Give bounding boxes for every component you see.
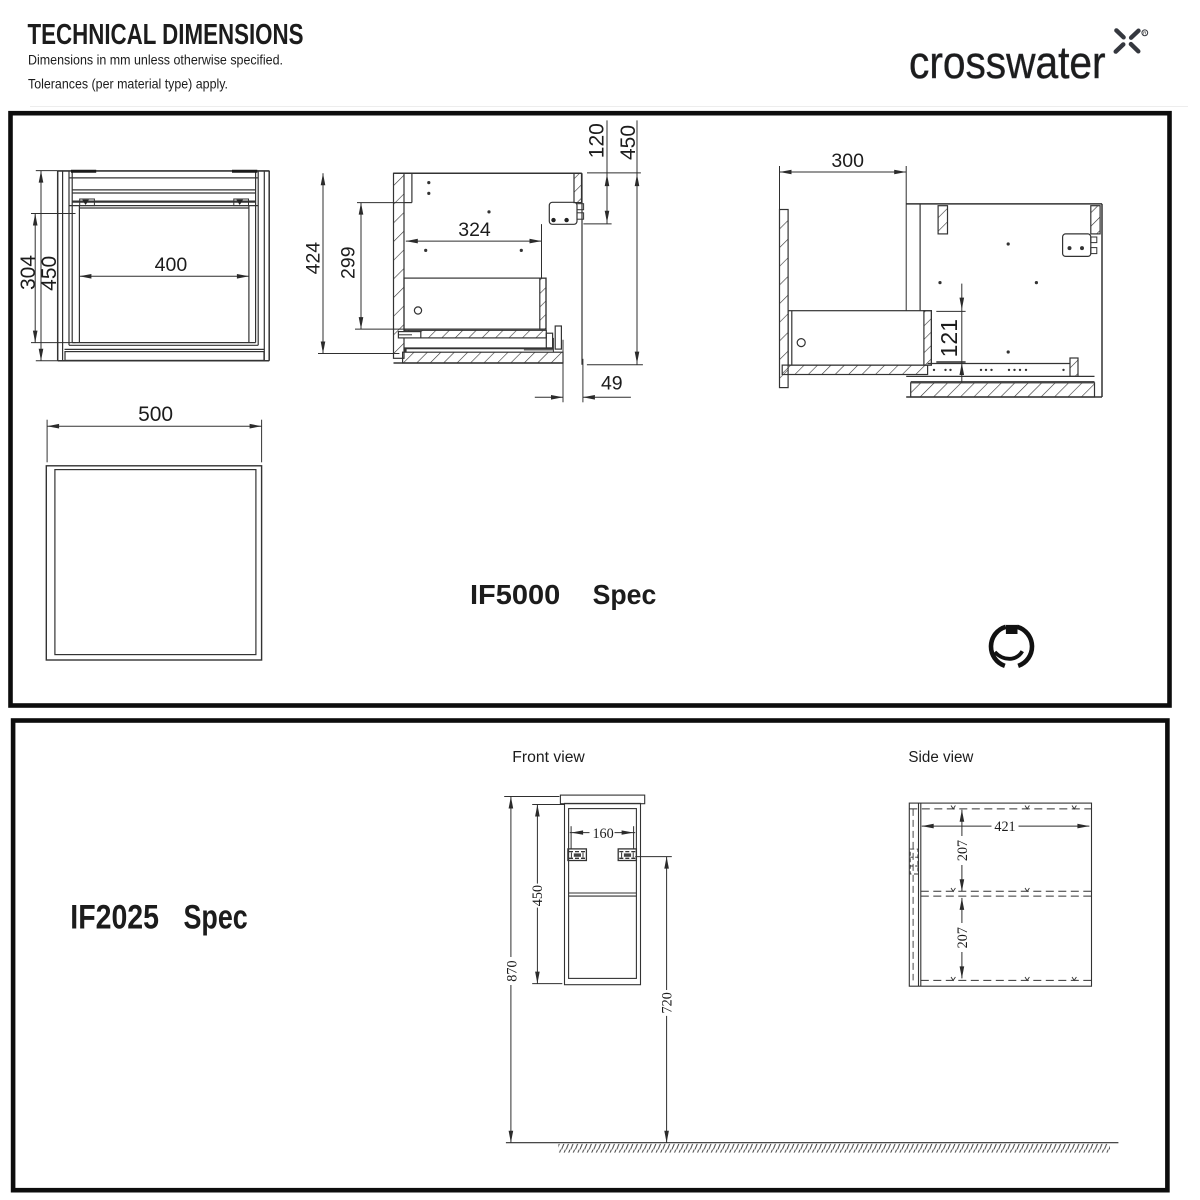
svg-text:Tolerances (per material type): Tolerances (per material type) apply. [28,77,228,92]
svg-text:IF2025: IF2025 [70,899,159,937]
svg-text:207: 207 [955,927,971,948]
svg-text:299: 299 [338,246,360,279]
svg-text:IF5000: IF5000 [470,579,560,610]
svg-text:Side view: Side view [908,749,974,766]
svg-text:400: 400 [155,254,188,276]
svg-text:121: 121 [936,319,962,357]
svg-text:720: 720 [660,992,676,1013]
svg-text:Spec: Spec [184,899,248,937]
svg-text:49: 49 [601,373,623,395]
svg-text:300: 300 [831,150,864,172]
svg-text:500: 500 [138,403,173,426]
svg-text:207: 207 [955,840,971,861]
svg-text:Dimensions in mm unless otherw: Dimensions in mm unless otherwise specif… [28,53,283,68]
svg-text:TECHNICAL DIMENSIONS: TECHNICAL DIMENSIONS [28,19,304,51]
svg-text:crosswater: crosswater [909,37,1106,88]
svg-text:450: 450 [38,256,61,291]
svg-text:160: 160 [592,826,613,842]
svg-text:870: 870 [504,960,520,981]
svg-text:Front view: Front view [512,749,585,766]
svg-text:Spec: Spec [593,579,657,610]
svg-text:450: 450 [530,885,546,906]
svg-text:421: 421 [994,819,1015,835]
svg-text:450: 450 [617,125,640,160]
svg-text:120: 120 [585,123,608,158]
svg-text:424: 424 [303,242,325,275]
svg-text:304: 304 [17,255,40,290]
svg-text:324: 324 [458,219,491,241]
